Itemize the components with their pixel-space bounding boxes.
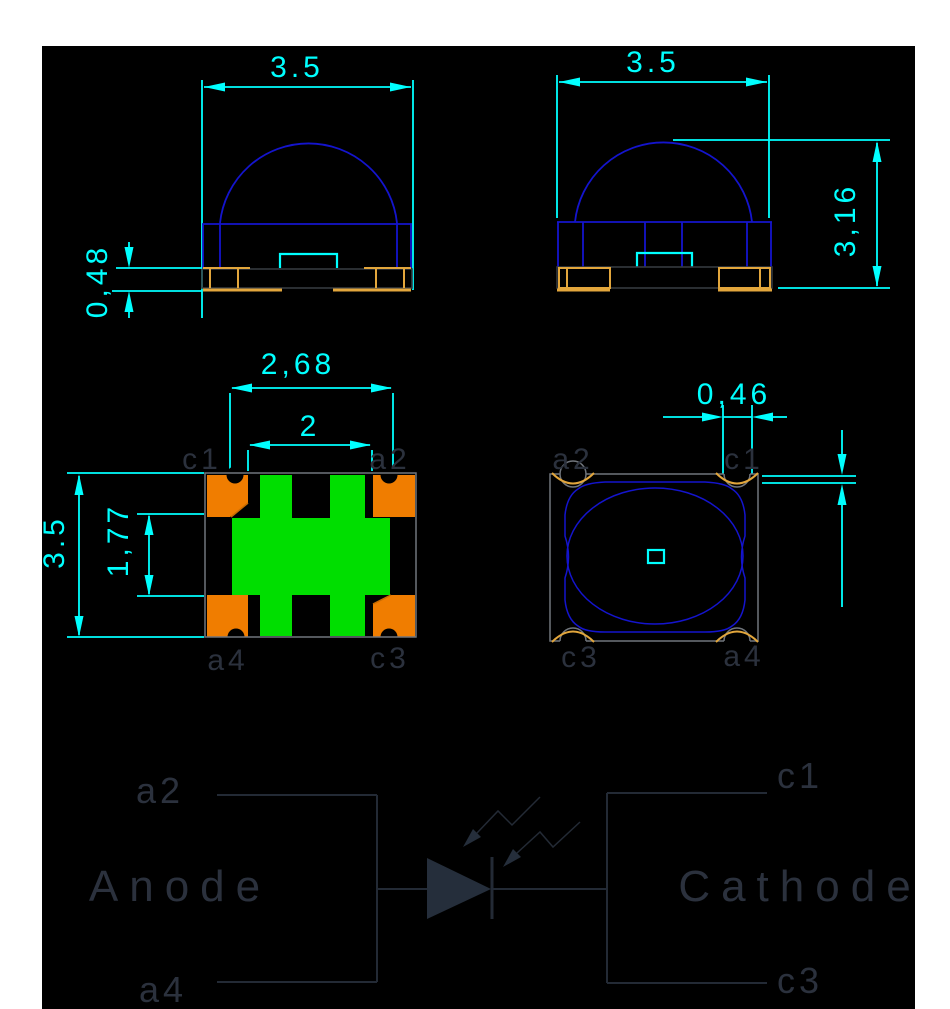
schematic-pin-c3: c3 — [777, 960, 823, 1001]
anode-label: Anode — [89, 862, 271, 911]
dim-front-pad-height: 0,48 — [81, 244, 114, 318]
dim-footprint-band: 1,77 — [102, 503, 135, 577]
dim-footprint-inner: 2 — [300, 410, 321, 443]
dim-side-height: 3,16 — [829, 183, 862, 257]
top-label-c3: c3 — [561, 641, 601, 674]
castellation-notch — [227, 467, 244, 484]
corner-pad-a4 — [207, 595, 248, 637]
schematic-pin-a4: a4 — [139, 969, 187, 1009]
schematic-pin-c1: c1 — [777, 755, 823, 796]
dim-side-width: 3.5 — [626, 46, 680, 79]
schematic-pin-a2: a2 — [136, 770, 184, 811]
footprint-label-a4: a4 — [207, 644, 248, 677]
cathode-label: Cathode — [678, 862, 921, 911]
footprint-label-c3: c3 — [370, 642, 410, 675]
footprint-label-a2: a2 — [369, 443, 410, 476]
footprint-label-c1: c1 — [182, 443, 222, 476]
green-pad-band — [232, 518, 390, 595]
dim-footprint-height: 3.5 — [38, 515, 71, 569]
dim-footprint-outer: 2,68 — [261, 348, 335, 381]
top-label-a4: a4 — [723, 640, 764, 673]
top-label-c1: c1 — [724, 443, 764, 476]
dim-front-width: 3.5 — [270, 51, 324, 84]
dim-top-notch: 0,46 — [697, 378, 771, 411]
cad-drawing: 3.5 0,48 3.5 — [0, 0, 950, 1009]
drawing-page: 3.5 0,48 3.5 — [0, 0, 950, 1009]
top-label-a2: a2 — [552, 443, 593, 476]
